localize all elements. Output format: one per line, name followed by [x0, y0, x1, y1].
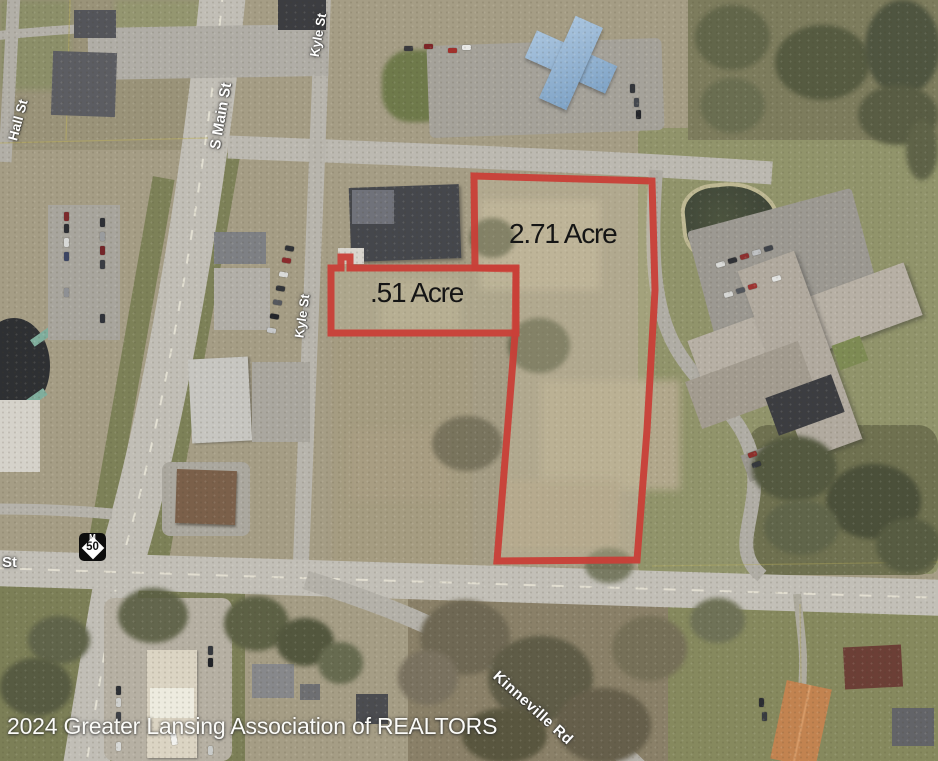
aerial-map: 2.71 Acre .51 Acre Hall St S Main St Kyl… — [0, 0, 938, 761]
parcel-label-small: .51 Acre — [370, 277, 463, 309]
copyright-text: 2024 Greater Lansing Association of REAL… — [7, 713, 497, 740]
shield-route-number: 50 — [79, 541, 106, 553]
route-shield-m50: M 50 — [79, 533, 106, 561]
parcel-label-large: 2.71 Acre — [509, 218, 617, 250]
parcel-overlay — [0, 0, 938, 761]
street-label-st-fragment: St — [2, 554, 17, 571]
